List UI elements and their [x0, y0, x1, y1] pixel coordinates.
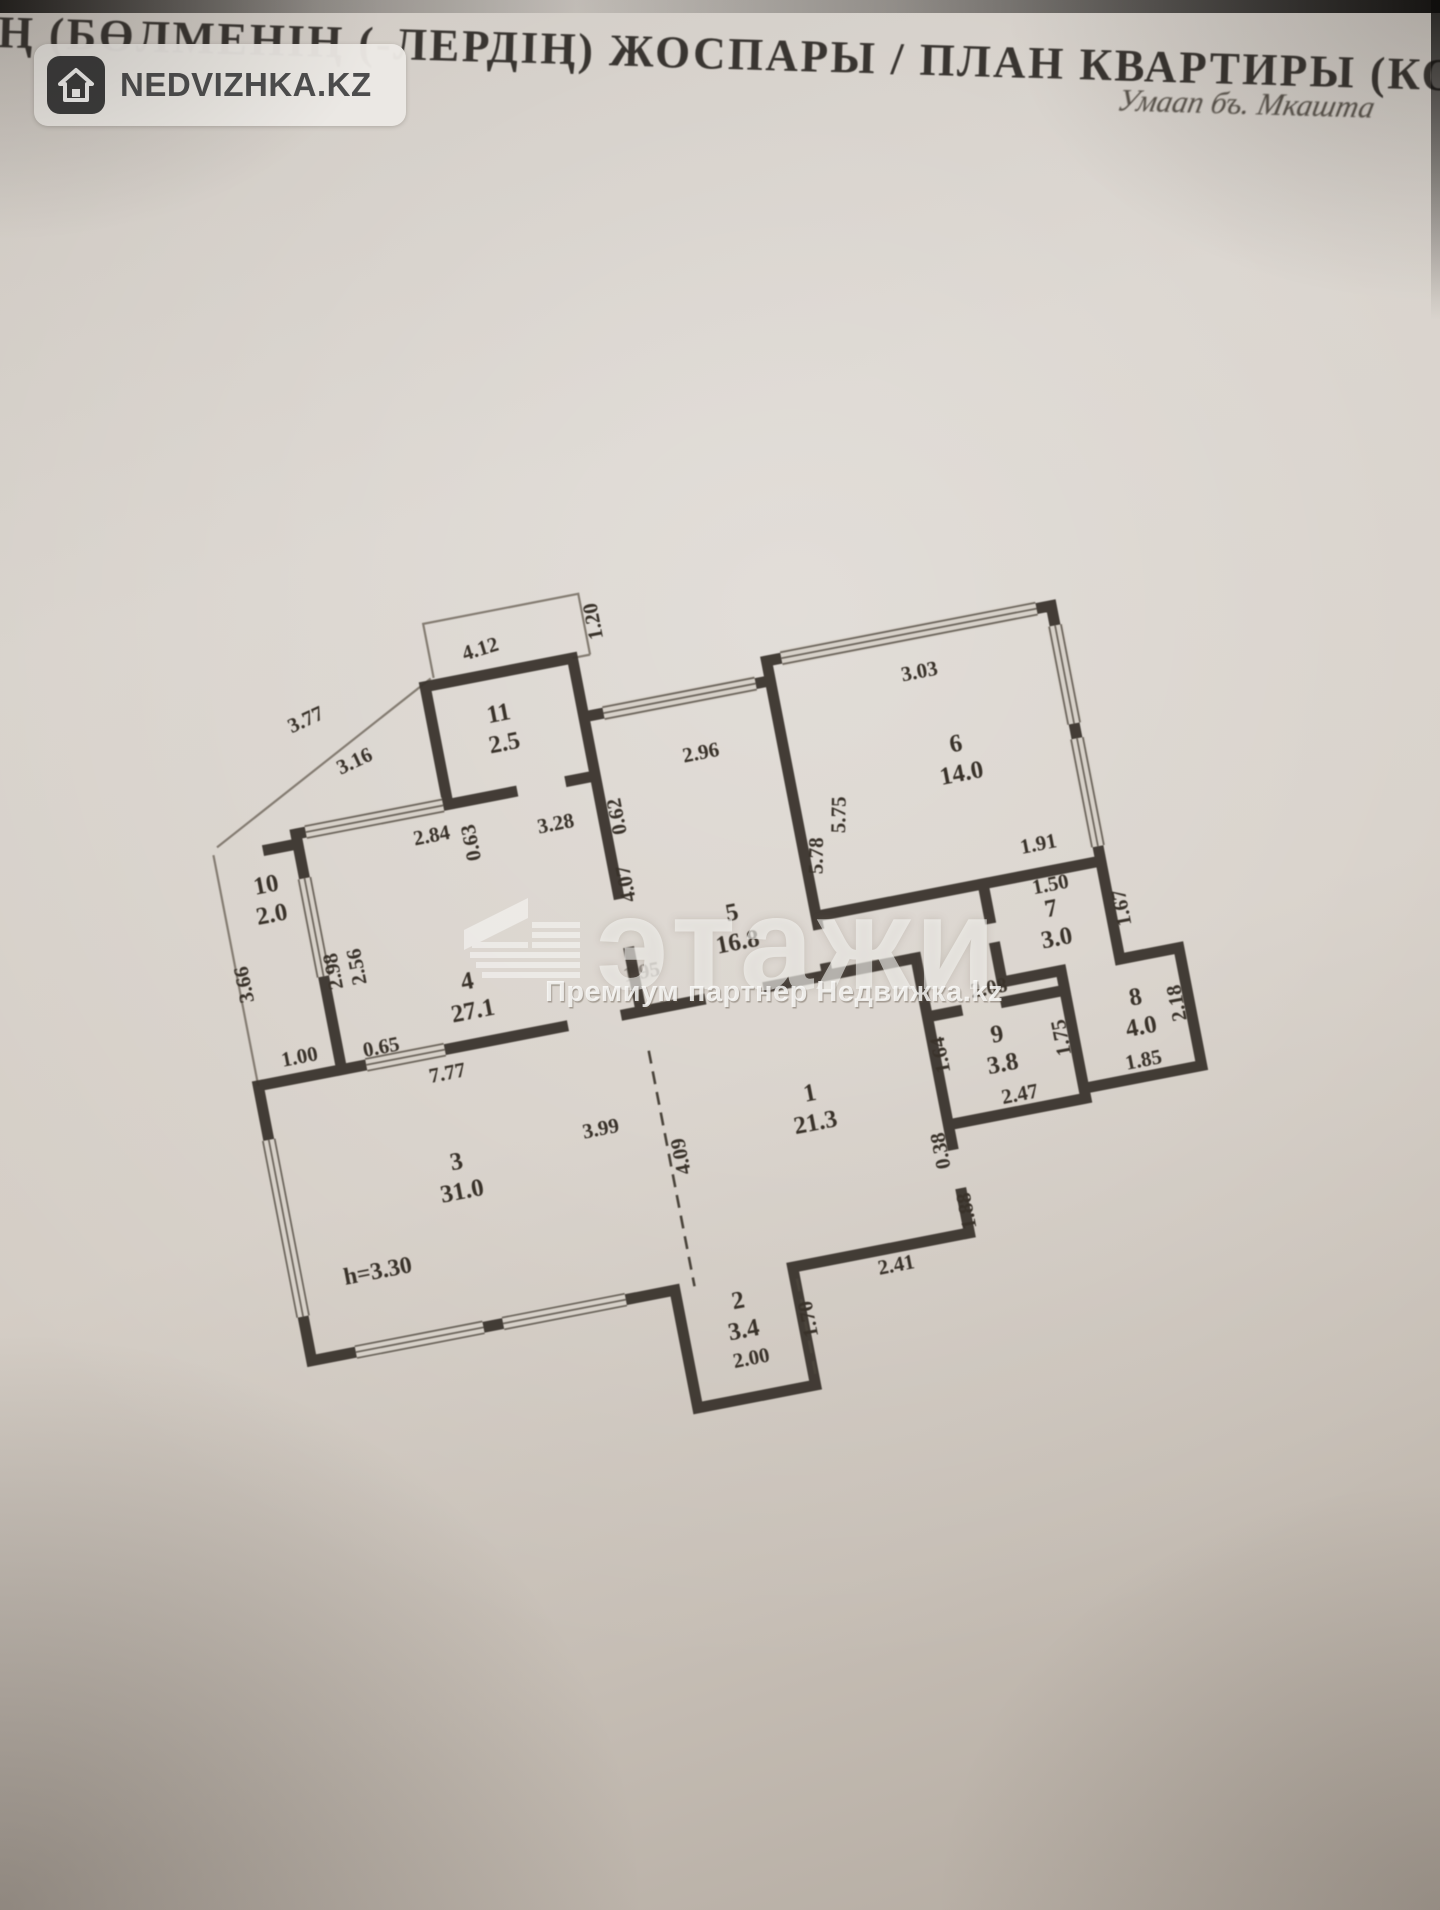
room-area-label: 3.0 — [1039, 922, 1075, 954]
dimension-label: 5.78 — [803, 837, 828, 874]
room-area-label: 2.5 — [486, 727, 522, 759]
room-number-label: 3 — [448, 1148, 465, 1177]
room-number-label: 8 — [1127, 983, 1144, 1012]
plan-labels: 121.323.4331.0427.1516.8614.073.084.093.… — [173, 506, 1241, 1454]
room-area-label: 14.0 — [938, 756, 986, 791]
room-area-label: 16.8 — [714, 925, 762, 960]
dimension-label: 4.12 — [459, 632, 501, 666]
room-number-label: 11 — [484, 698, 512, 729]
dimension-label: 2.96 — [680, 737, 721, 768]
dimension-label: 1.88 — [951, 1191, 982, 1232]
floor-plan-drawing: 121.323.4331.0427.1516.8614.073.084.093.… — [0, 0, 1440, 1910]
room-area-label: 3.8 — [985, 1048, 1021, 1080]
ceiling-height-label: h=3.30 — [342, 1252, 415, 1291]
floor-plan-photo: РДІҢ (БӨЛМЕНІҢ (-ЛЕРДІҢ) ЖОСПАРЫ / ПЛАН … — [0, 0, 1440, 1910]
dimension-label: 7.77 — [427, 1057, 468, 1088]
window-hatch — [354, 1319, 485, 1360]
dimension-label: 3.28 — [535, 808, 576, 839]
photo-top-edge — [0, 0, 1440, 13]
room-area-label: 31.0 — [438, 1174, 486, 1209]
room-number-label: 1 — [801, 1079, 818, 1108]
dimension-label: 1.64 — [925, 1034, 956, 1075]
room-number-label: 7 — [1042, 894, 1059, 923]
room-number-label: 5 — [723, 898, 740, 927]
dimension-label: 4.09 — [665, 1136, 696, 1177]
dimension-label: 3.03 — [899, 656, 940, 687]
dimension-label: 3.99 — [580, 1113, 621, 1144]
room-number-label: 10 — [251, 870, 281, 901]
room-area-label: 21.3 — [791, 1105, 839, 1140]
window-hatch — [780, 601, 1038, 666]
window-hatch — [1047, 624, 1082, 725]
room-number-label: 6 — [947, 730, 964, 759]
dimension-label: 3.66 — [228, 964, 259, 1005]
photo-right-edge — [1431, 0, 1440, 320]
window-hatch — [1069, 737, 1106, 848]
dimension-label: 5.75 — [826, 796, 851, 833]
dimension-label: 0.63 — [456, 823, 487, 864]
dimension-label: 1.20 — [578, 601, 609, 642]
dimension-label: 2.00 — [731, 1343, 772, 1374]
dimension-label: 3.16 — [333, 742, 376, 779]
dimension-label: 1.70 — [793, 1299, 824, 1340]
room-number-label: 4 — [458, 967, 476, 996]
window-hatch — [602, 676, 757, 721]
room-number-label: 2 — [729, 1286, 746, 1315]
dimension-label: 1.91 — [1018, 828, 1059, 859]
room-number-label: 9 — [988, 1020, 1005, 1049]
room-area-label: 2.0 — [254, 898, 290, 930]
dimension-label: 2.84 — [411, 820, 452, 851]
dimension-label: 1.00 — [279, 1041, 320, 1072]
dimension-label: 3.77 — [284, 701, 327, 738]
room-area-label: 4.0 — [1123, 1011, 1159, 1043]
window-hatch — [261, 1138, 311, 1318]
window-hatch — [502, 1292, 628, 1332]
room-area-label: 3.4 — [726, 1314, 762, 1347]
room-area-label: 27.1 — [449, 994, 497, 1029]
